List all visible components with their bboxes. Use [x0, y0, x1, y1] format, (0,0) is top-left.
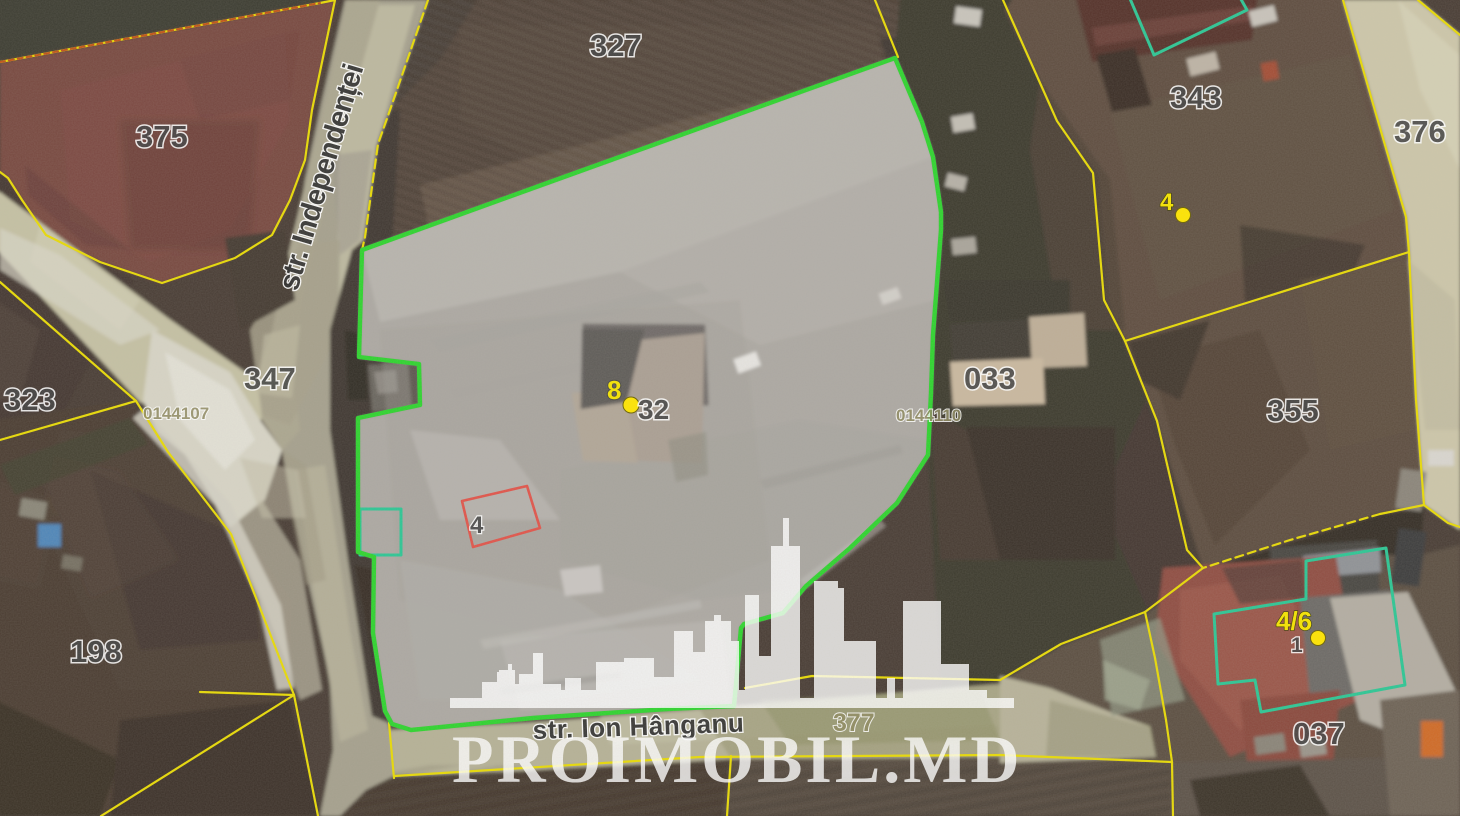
svg-text:375: 375 — [136, 119, 188, 154]
svg-text:4: 4 — [1160, 189, 1174, 216]
svg-text:0144110: 0144110 — [896, 406, 961, 425]
svg-text:327: 327 — [590, 28, 642, 63]
svg-text:4/6: 4/6 — [1276, 606, 1312, 636]
svg-text:376: 376 — [1394, 114, 1446, 149]
svg-text:PROIMOBIL.MD: PROIMOBIL.MD — [452, 721, 1023, 797]
svg-text:355: 355 — [1267, 393, 1319, 428]
svg-text:347: 347 — [244, 361, 296, 396]
svg-text:0144107: 0144107 — [143, 404, 209, 423]
svg-text:4: 4 — [470, 512, 484, 539]
svg-text:343: 343 — [1170, 80, 1222, 115]
svg-text:323: 323 — [4, 382, 56, 417]
svg-text:198: 198 — [70, 634, 122, 669]
svg-text:033: 033 — [964, 361, 1016, 396]
svg-text:037: 037 — [1293, 716, 1345, 751]
svg-text:1: 1 — [1291, 634, 1303, 657]
svg-text:32: 32 — [638, 394, 669, 425]
svg-text:8: 8 — [607, 375, 621, 405]
